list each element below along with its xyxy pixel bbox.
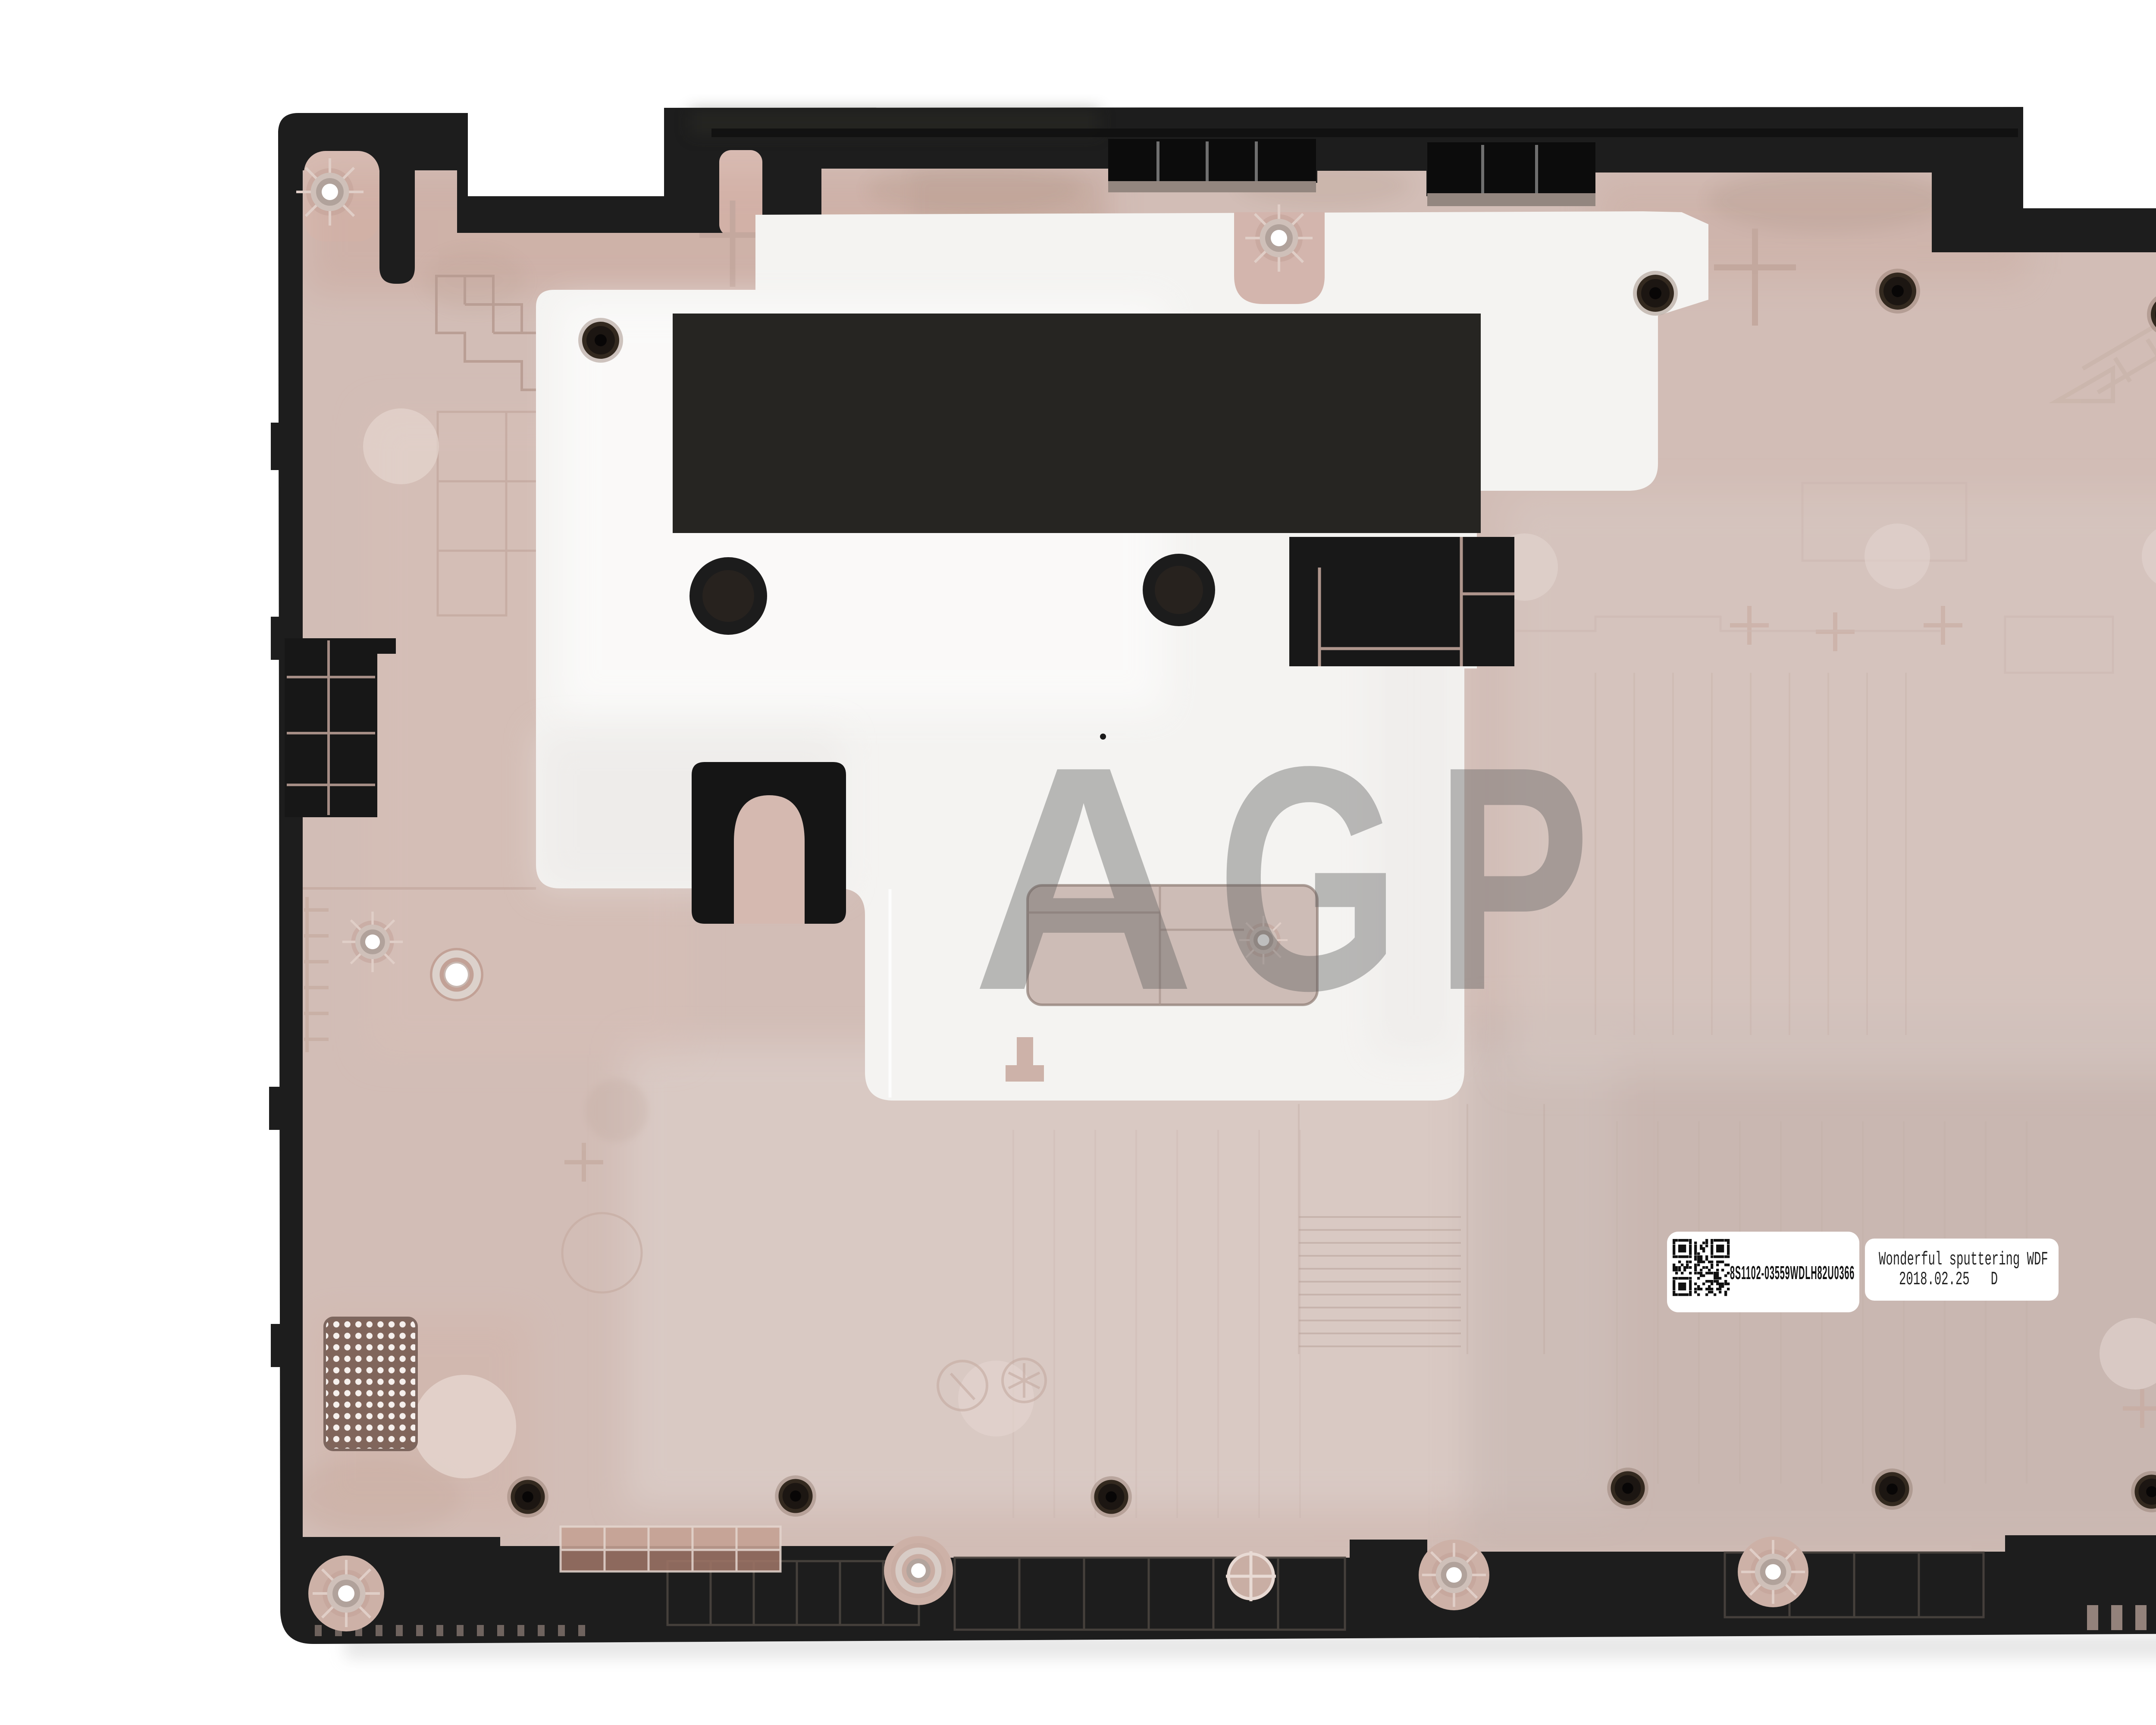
svg-text:P: P (1435, 701, 1590, 1057)
svg-text:A: A (972, 700, 1195, 1057)
svg-text:8S1102-03559WDLH82U0366: 8S1102-03559WDLH82U0366 (1730, 1262, 1855, 1283)
svg-text:Wonderful sputtering WDF: Wonderful sputtering WDF (1879, 1249, 2048, 1270)
svg-text:2018.02.25 D: 2018.02.25 D (1899, 1269, 1998, 1290)
svg-text:G: G (1217, 700, 1401, 1056)
